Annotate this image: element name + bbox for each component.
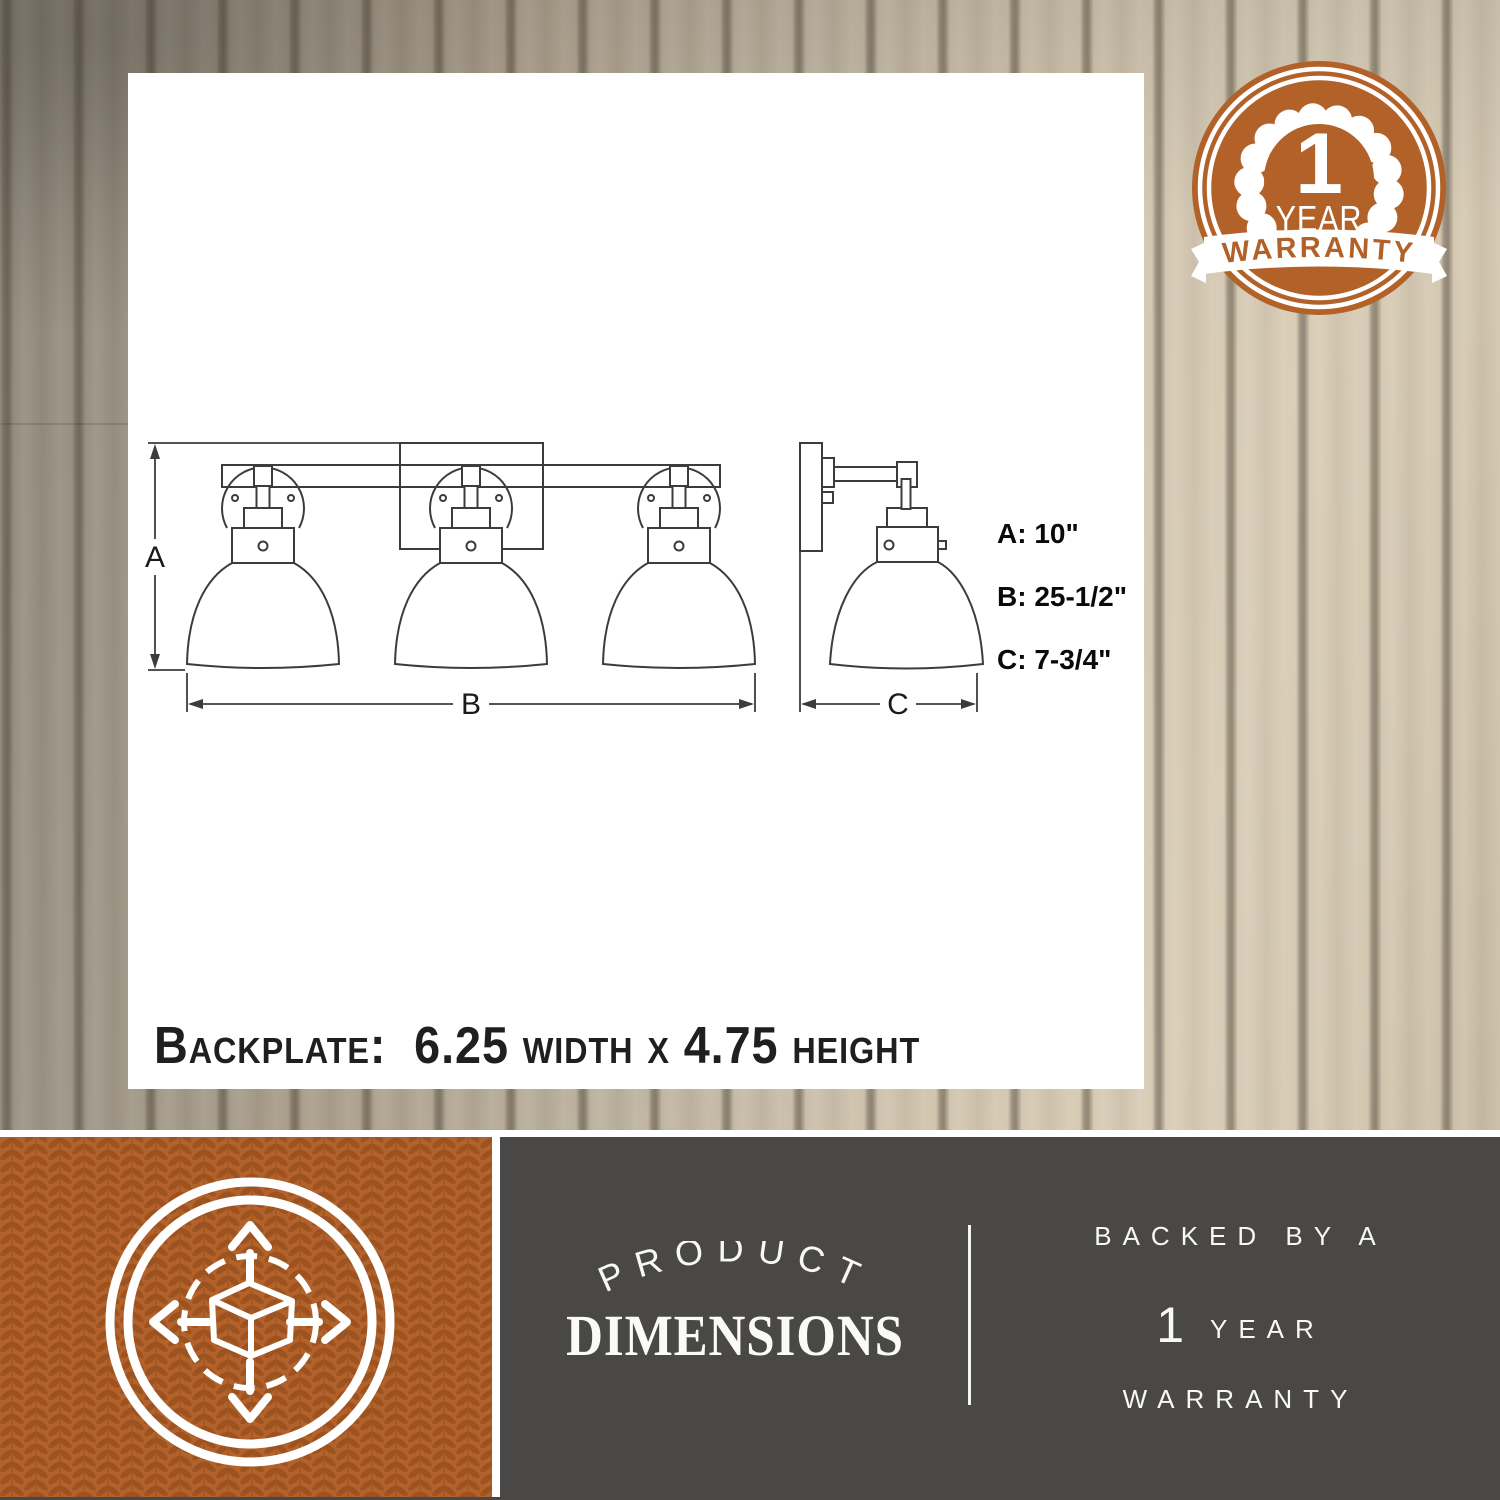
- one-year-warranty-badge: 1 YEAR WARRANTY: [1190, 59, 1448, 317]
- dimensions-icon-tile: [0, 1137, 492, 1497]
- backed-line-2: 1YEAR: [970, 1296, 1500, 1354]
- wood-plank-seam: [0, 423, 128, 425]
- front-view: [187, 443, 755, 668]
- label-c: C: [887, 688, 909, 721]
- backplate-note: Backplate: 6.25 width x 4.75 height: [154, 1017, 920, 1077]
- svg-text:PRODUCT: PRODUCT: [592, 1241, 878, 1300]
- label-b: B: [461, 688, 481, 721]
- product-dimensions-block: PRODUCT DIMENSIONS: [500, 1137, 970, 1497]
- dim-a-value: A: 10": [997, 518, 1079, 549]
- lamp-unit: [187, 466, 339, 668]
- footer-band: PRODUCT DIMENSIONS BACKED BY A 1YEAR WAR…: [0, 1130, 1500, 1500]
- side-view: [800, 443, 983, 669]
- product-dimensions-icon: [110, 1182, 390, 1462]
- orange-pattern-tile: [0, 1137, 492, 1497]
- dim-c-value: C: 7-3/4": [997, 644, 1111, 675]
- product-arc-text: PRODUCT: [592, 1241, 878, 1300]
- warranty-year-word: YEAR: [1210, 1314, 1325, 1344]
- warranty-text-block: BACKED BY A 1YEAR WARRANTY: [970, 1137, 1500, 1497]
- backed-line-3: WARRANTY: [970, 1384, 1500, 1415]
- lamp-unit: [395, 466, 547, 668]
- spec-card: A B: [128, 73, 1144, 1089]
- lamp-unit: [603, 466, 755, 668]
- dim-b-value: B: 25-1/2": [997, 581, 1127, 612]
- dimensions-word: DIMENSIONS: [528, 1307, 942, 1365]
- footer-gray-panel: PRODUCT DIMENSIONS BACKED BY A 1YEAR WAR…: [500, 1137, 1500, 1497]
- badge-number: 1: [1295, 116, 1343, 212]
- label-a: A: [145, 541, 165, 574]
- product-dimensions-infographic: A B: [0, 0, 1500, 1500]
- dimension-b: B: [187, 673, 755, 721]
- warranty-year-number: 1: [1156, 1297, 1184, 1353]
- backed-line-1: BACKED BY A: [970, 1137, 1500, 1252]
- dimension-values: A: 10" B: 25-1/2" C: 7-3/4": [997, 518, 1127, 675]
- technical-drawing: A B: [128, 73, 1144, 1089]
